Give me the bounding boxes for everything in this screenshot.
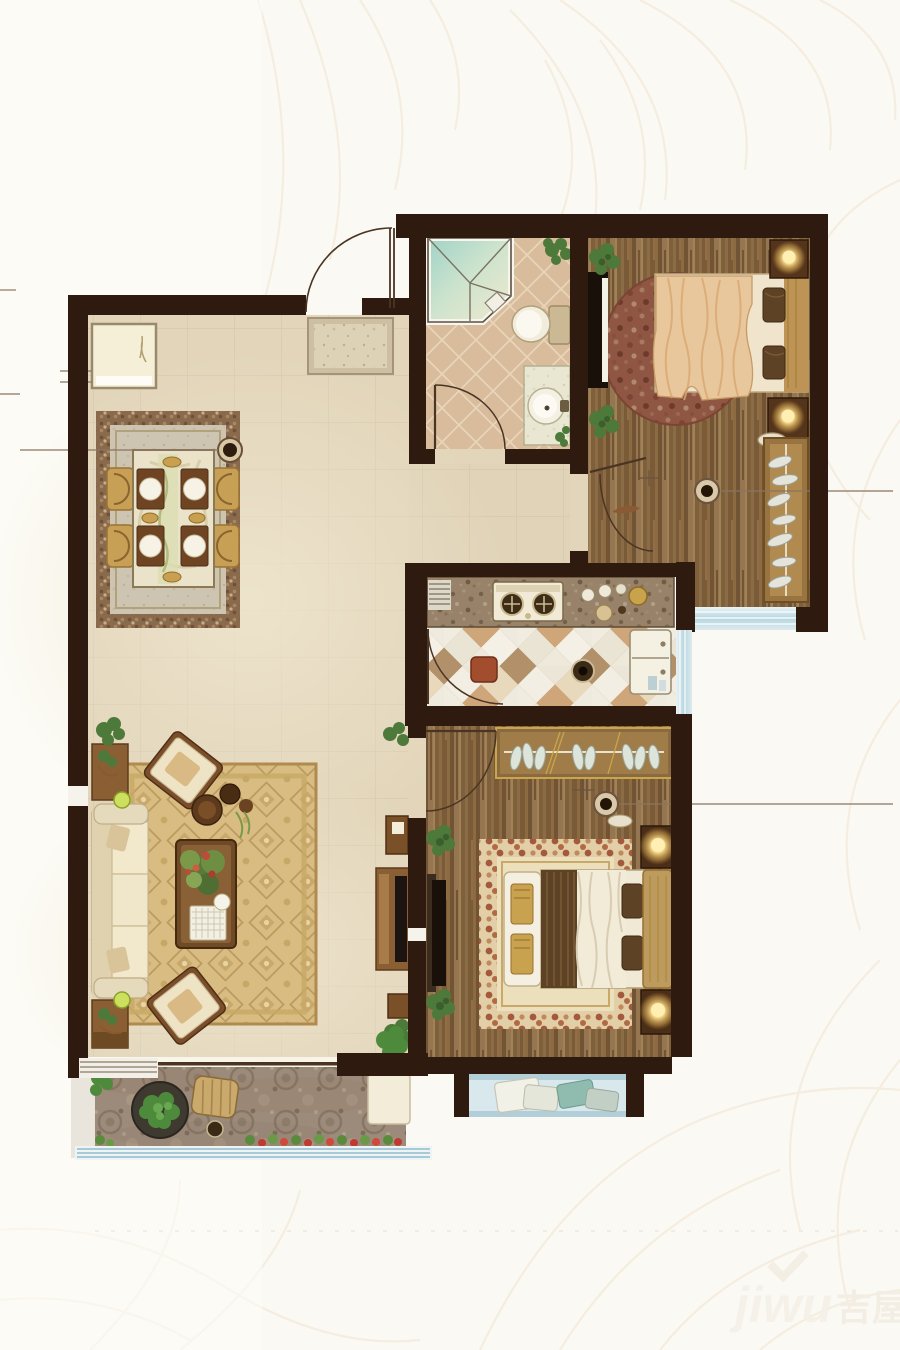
svg-text:吉屋: 吉屋 (836, 1287, 900, 1328)
svg-text:jiwu: jiwu (729, 1277, 832, 1333)
